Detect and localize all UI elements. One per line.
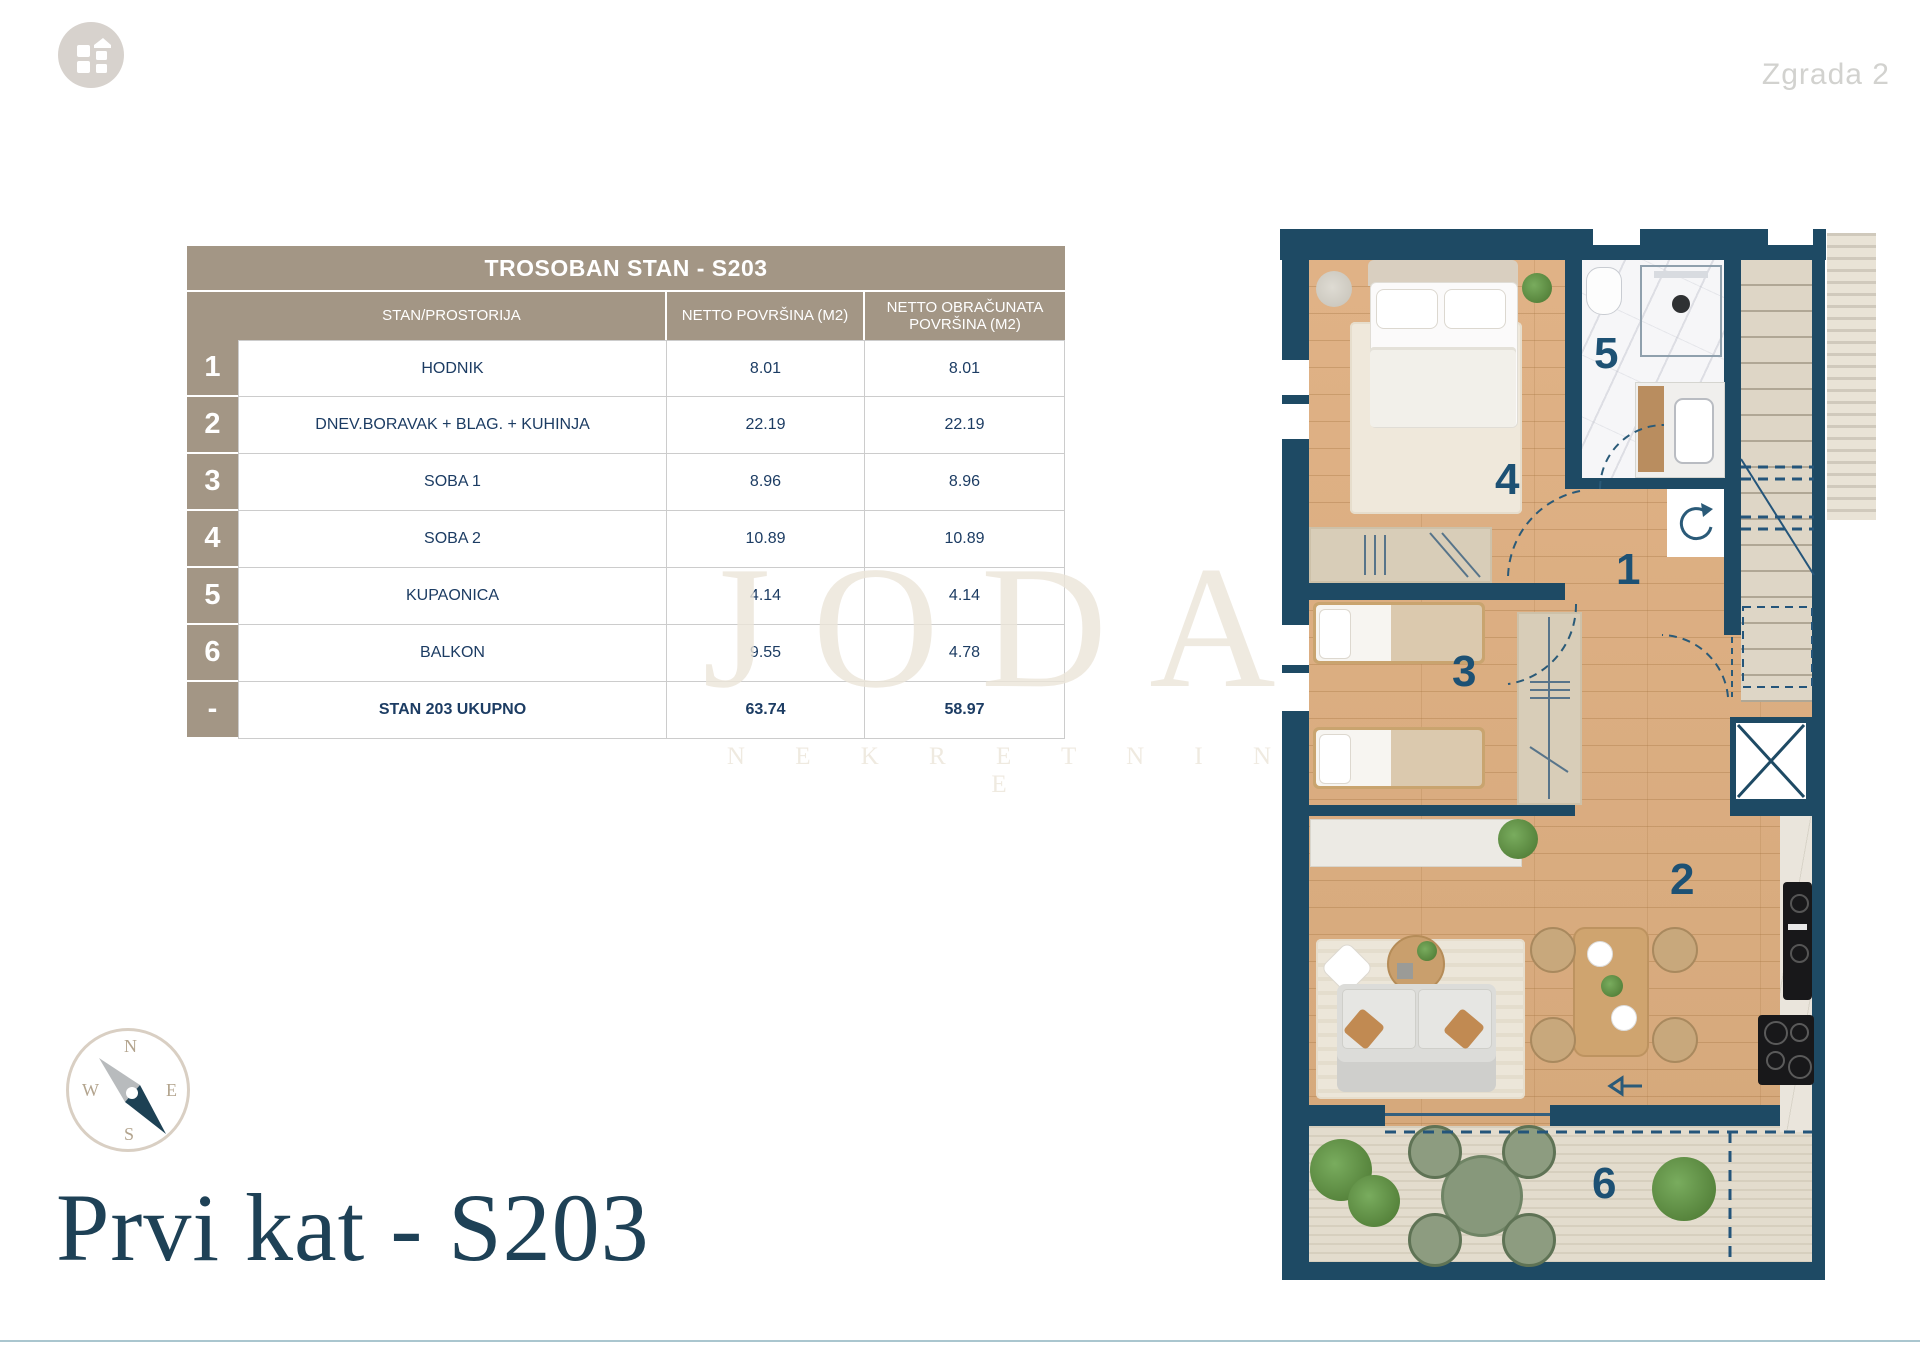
room-label-bedroom2: 4 <box>1495 455 1519 505</box>
bedroom1-wardrobe <box>1517 612 1582 805</box>
window-bed1 <box>1282 673 1309 711</box>
bedroom2-wardrobe <box>1309 527 1492 583</box>
shower-head-icon <box>1672 295 1690 313</box>
header-net-col: NETTO POVRŠINA (M2) <box>667 292 865 340</box>
compass-rose: N E S W <box>66 1028 190 1152</box>
bed-duvet <box>1370 347 1516 427</box>
balcony-door-threshold <box>1385 1113 1550 1116</box>
stair-direction-box <box>1667 489 1724 557</box>
room-label-living: 2 <box>1670 855 1694 905</box>
table-plant <box>1417 941 1437 961</box>
bed-pillow <box>1376 289 1438 329</box>
vanity-sink <box>1674 398 1714 464</box>
living-console <box>1310 819 1522 867</box>
page-bottom-rule <box>0 1340 1920 1342</box>
wall-bed1-living <box>1282 805 1575 816</box>
table-title: TROSOBAN STAN - S203 <box>187 246 1065 292</box>
compass-south-label: S <box>124 1124 134 1145</box>
window-bed1 <box>1282 625 1309 665</box>
compass-east-label: E <box>166 1080 177 1101</box>
plate <box>1611 1005 1637 1031</box>
brand-logo-icon <box>58 22 124 88</box>
window-bed2 <box>1282 360 1309 395</box>
window-bed2 <box>1282 404 1309 439</box>
room-label-balcony: 6 <box>1592 1159 1616 1209</box>
vanity-shelf <box>1638 386 1664 472</box>
centerpiece-plant <box>1601 975 1623 997</box>
table-row: 4 SOBA 2 10.89 10.89 <box>187 511 1065 568</box>
header-num-col <box>187 292 238 340</box>
cooktop <box>1758 1015 1814 1085</box>
sofa <box>1337 984 1496 1092</box>
adjacent-area-hatch <box>1827 233 1876 520</box>
table-row: 5 KUPAONICA 4.14 4.14 <box>187 568 1065 625</box>
wall-bath-bottom <box>1565 478 1741 489</box>
rotation-arrow-icon <box>1667 489 1724 557</box>
elevator-shaft <box>1730 717 1812 805</box>
dining-table <box>1573 927 1649 1057</box>
wall-under-elevator <box>1730 805 1812 816</box>
stairwell-floor <box>1741 260 1814 702</box>
wall-right <box>1812 229 1825 1280</box>
room-label-bedroom1: 3 <box>1452 647 1476 697</box>
building-label: Zgrada 2 <box>1690 58 1890 92</box>
bathroom-vanity <box>1635 382 1725 478</box>
page-title: Prvi kat - S203 <box>56 1172 650 1283</box>
bed-pillow <box>1319 609 1351 659</box>
table-row: 3 SOBA 1 8.96 8.96 <box>187 454 1065 511</box>
wall-bottom <box>1282 1262 1825 1280</box>
window-top-stairs <box>1768 229 1813 245</box>
balcony-chair <box>1502 1213 1556 1267</box>
table-row: 2 DNEV.BORAVAK + BLAG. + KUHINJA 22.19 2… <box>187 397 1065 454</box>
header-room-col: STAN/PROSTORIJA <box>238 292 667 340</box>
balcony-chair <box>1408 1125 1462 1179</box>
window-top-bath <box>1593 229 1640 245</box>
wall-bed2-bath <box>1565 260 1582 489</box>
bed-pillow <box>1319 734 1351 784</box>
wall-bed2-bed1 <box>1282 583 1565 600</box>
area-table: TROSOBAN STAN - S203 STAN/PROSTORIJA NET… <box>187 246 1065 739</box>
room-label-bathroom: 5 <box>1594 329 1618 379</box>
compass-west-label: W <box>82 1080 99 1101</box>
table-row: 1 HODNIK 8.01 8.01 <box>187 340 1065 397</box>
table-header-row: STAN/PROSTORIJA NETTO POVRŠINA (M2) NETT… <box>187 292 1065 340</box>
shower-shelf <box>1654 271 1708 278</box>
wall-living-balcony-right <box>1550 1105 1812 1126</box>
floor-plan: 1 2 3 4 5 6 <box>1280 227 1826 1280</box>
dining-chair <box>1530 1017 1576 1063</box>
balcony-plant <box>1652 1157 1716 1221</box>
wall-living-balcony-left <box>1282 1105 1385 1126</box>
wall-bath-stairs <box>1724 260 1741 635</box>
balcony-plant <box>1348 1175 1400 1227</box>
vase-plant <box>1316 271 1352 307</box>
wall-top <box>1280 229 1826 260</box>
watermark-subtitle: N E K R E T N I N E <box>700 743 1320 799</box>
dining-chair <box>1652 1017 1698 1063</box>
kitchen-sink <box>1783 882 1812 1000</box>
room-label-hallway: 1 <box>1616 545 1640 595</box>
table-total-row: - STAN 203 UKUPNO 63.74 58.97 <box>187 682 1065 739</box>
potted-plant <box>1522 273 1552 303</box>
table-tray <box>1397 963 1413 979</box>
balcony-chair <box>1408 1213 1462 1267</box>
header-calc-col: NETTO OBRAČUNATA POVRŠINA (M2) <box>865 292 1065 340</box>
table-row: 6 BALKON 9.55 4.78 <box>187 625 1065 682</box>
compass-north-label: N <box>124 1036 137 1057</box>
dining-chair <box>1530 927 1576 973</box>
dining-chair <box>1652 927 1698 973</box>
shower-enclosure <box>1640 265 1722 357</box>
plate <box>1587 941 1613 967</box>
toilet <box>1586 267 1622 315</box>
potted-plant <box>1498 819 1538 859</box>
balcony-chair <box>1502 1125 1556 1179</box>
bed-pillow <box>1444 289 1506 329</box>
